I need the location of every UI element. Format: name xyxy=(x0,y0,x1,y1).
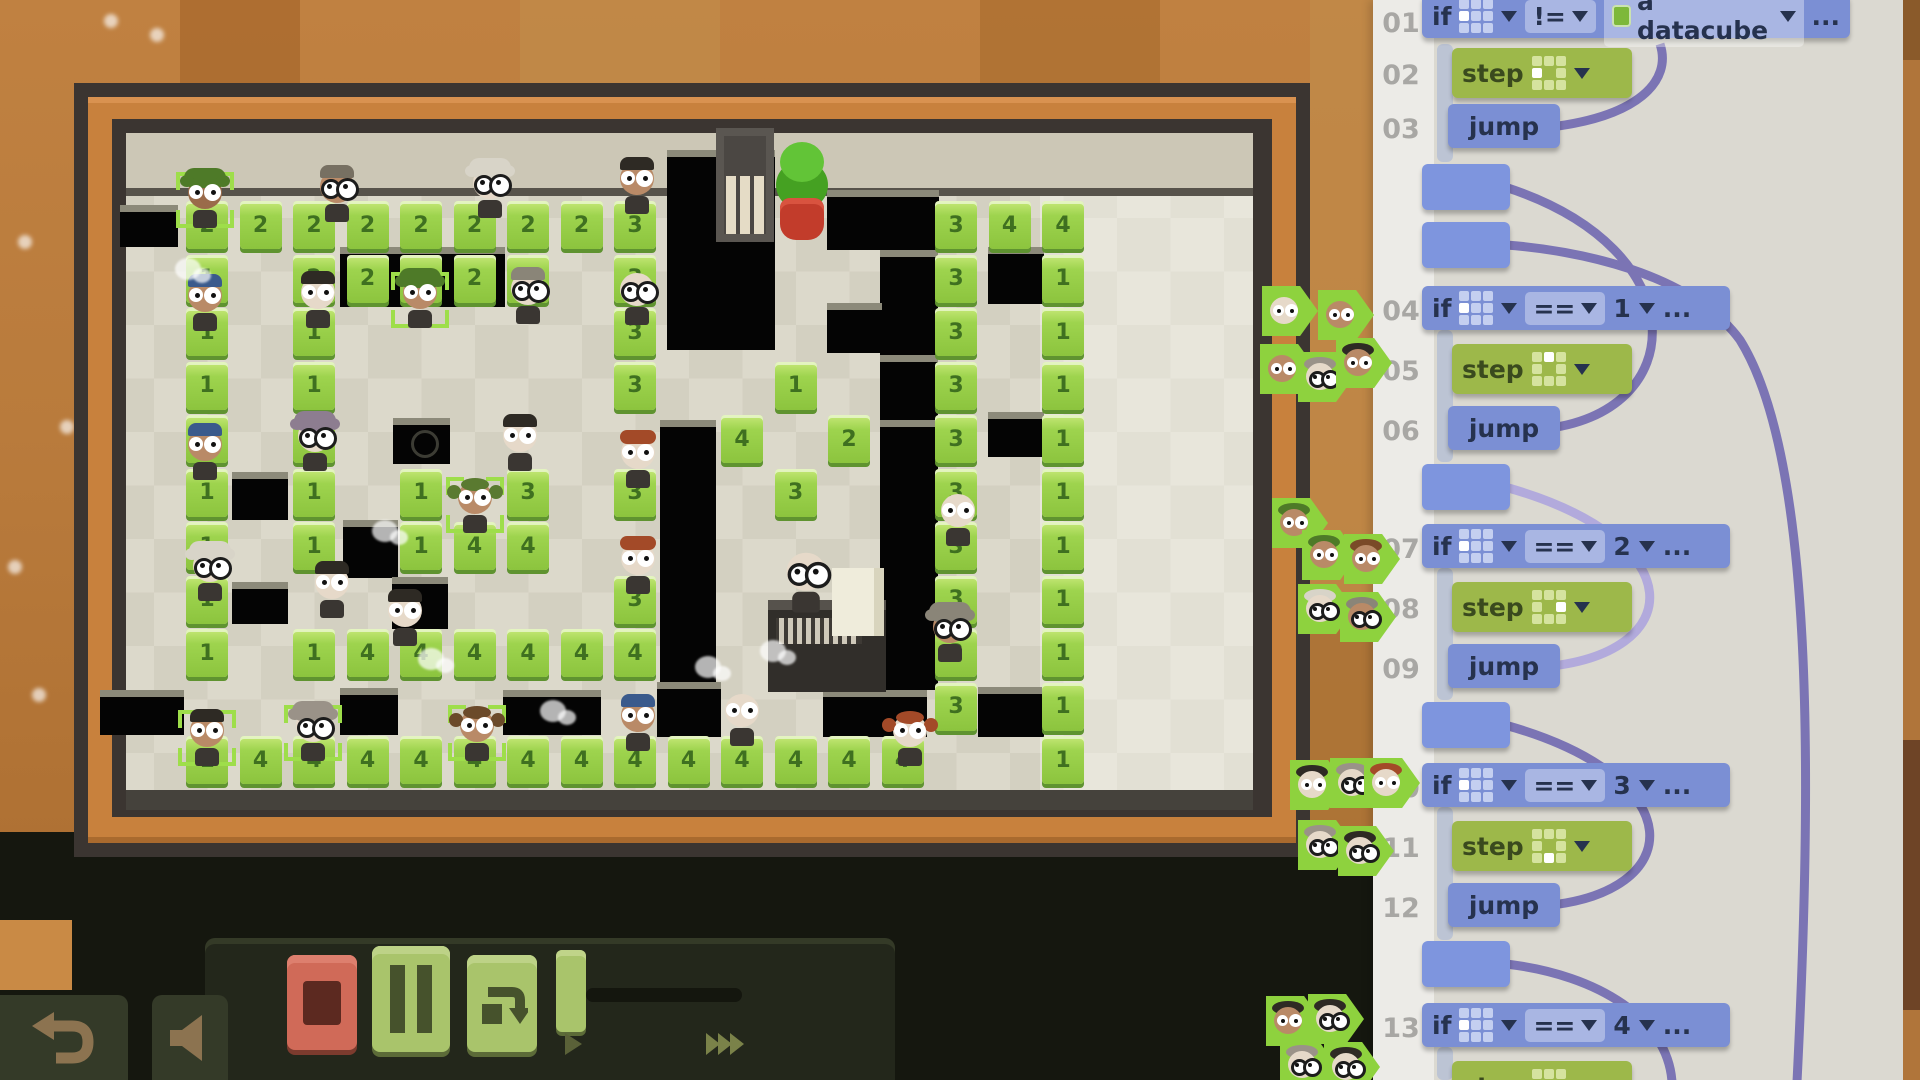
chevron-down-icon[interactable] xyxy=(1639,1020,1655,1031)
compare-value: 1 xyxy=(1613,294,1630,323)
worker[interactable] xyxy=(177,704,237,768)
jump-keyword: jump xyxy=(1469,414,1539,443)
jump-target-tab[interactable] xyxy=(1422,164,1510,210)
floor-pit xyxy=(660,420,716,690)
worker[interactable] xyxy=(607,263,667,327)
operator-value: == xyxy=(1533,532,1575,561)
operator-dropdown[interactable]: == xyxy=(1525,1009,1605,1042)
worker-pupil xyxy=(211,190,216,195)
chevron-down-icon[interactable] xyxy=(1639,303,1655,314)
worker-pupil xyxy=(518,286,523,291)
worker-body xyxy=(303,453,327,471)
if-direction-grid[interactable] xyxy=(1459,0,1493,33)
if-body-indent xyxy=(1437,1047,1453,1080)
operator-value: == xyxy=(1533,1011,1575,1040)
step-block[interactable]: step xyxy=(1452,48,1632,98)
worker-pupil xyxy=(195,293,200,298)
if-direction-grid[interactable] xyxy=(1459,1008,1493,1042)
worker-pupil xyxy=(510,433,515,438)
worker[interactable] xyxy=(460,156,520,220)
datacube[interactable]: 1 xyxy=(186,629,228,677)
worker[interactable] xyxy=(712,684,772,748)
worker-body xyxy=(198,583,222,601)
operator-value: == xyxy=(1533,771,1575,800)
worker-pupil xyxy=(643,176,648,181)
datacube[interactable]: 4 xyxy=(507,629,549,677)
datacube[interactable]: 4 xyxy=(454,629,496,677)
datacube[interactable]: 4 xyxy=(775,736,817,784)
worker-pupil xyxy=(211,293,216,298)
background-building xyxy=(0,920,72,990)
datacube[interactable]: 3 xyxy=(775,469,817,517)
worker-pupil xyxy=(627,287,632,292)
if-block[interactable]: if==2... xyxy=(1422,524,1730,568)
worker[interactable] xyxy=(920,600,980,664)
datacube[interactable]: 4 xyxy=(400,736,442,784)
avatar-pupil xyxy=(1318,783,1322,787)
worker-hair xyxy=(620,430,656,444)
avatar-eye xyxy=(1303,1058,1322,1077)
avatar-pupil xyxy=(1326,375,1330,379)
avatar-pupil xyxy=(1277,309,1281,313)
floor-pit xyxy=(100,690,184,735)
line-number: 01 xyxy=(1373,8,1429,39)
speed-slider[interactable] xyxy=(556,950,586,1032)
worker-hair xyxy=(315,561,349,574)
operator-dropdown[interactable]: == xyxy=(1525,530,1605,563)
datacube[interactable]: 1 xyxy=(1042,308,1084,356)
datacube[interactable]: 1 xyxy=(1042,469,1084,517)
worker-body xyxy=(938,644,962,662)
datacube[interactable]: 4 xyxy=(561,629,603,677)
datacube[interactable]: 4 xyxy=(507,736,549,784)
jump-keyword: jump xyxy=(1469,112,1539,141)
floor-pit xyxy=(880,250,938,355)
datacube[interactable]: 2 xyxy=(347,255,389,303)
datacube[interactable]: 1 xyxy=(1042,683,1084,731)
datacube[interactable]: 1 xyxy=(775,362,817,410)
step-over-button[interactable] xyxy=(467,955,537,1052)
chevron-down-icon[interactable] xyxy=(1501,1020,1517,1031)
avatar-eye xyxy=(1363,610,1382,629)
step-direction-grid[interactable] xyxy=(1532,590,1566,624)
jump-block[interactable]: jump xyxy=(1448,406,1560,450)
floor-pit xyxy=(827,303,882,353)
worker-body xyxy=(301,743,325,761)
line-number: 13 xyxy=(1373,1013,1429,1044)
worker-pupil xyxy=(410,290,415,295)
worker-pupil xyxy=(467,723,472,728)
if-block[interactable]: if==4... xyxy=(1422,1003,1730,1047)
datacube[interactable]: 1 xyxy=(293,362,335,410)
chevron-down-icon[interactable] xyxy=(1574,602,1590,613)
jump-block[interactable]: jump xyxy=(1448,104,1560,148)
step-keyword: step xyxy=(1462,593,1524,622)
worker-body xyxy=(792,592,820,613)
jump-target-tab[interactable] xyxy=(1422,464,1510,510)
if-keyword: if xyxy=(1432,2,1451,31)
undo-icon xyxy=(28,1008,100,1068)
chevron-down-icon[interactable] xyxy=(1572,11,1588,22)
datacube[interactable]: 1 xyxy=(1042,576,1084,624)
line-number: 09 xyxy=(1373,654,1429,685)
if-block[interactable]: if!=a datacube... xyxy=(1422,0,1850,38)
worker-pupil xyxy=(643,287,648,292)
operator-dropdown[interactable]: == xyxy=(1525,769,1605,802)
worker-pupil xyxy=(644,713,649,718)
compare-value: 2 xyxy=(1613,532,1630,561)
step-block[interactable]: step xyxy=(1452,821,1632,871)
worker-eye xyxy=(314,427,337,450)
datacube[interactable]: 2 xyxy=(454,255,496,303)
play-icon xyxy=(565,1033,582,1055)
bug-icon xyxy=(411,430,439,458)
avatar-pupil xyxy=(1308,1063,1312,1067)
avatar-pupil xyxy=(1372,557,1376,561)
chevron-down-icon[interactable] xyxy=(1501,780,1517,791)
jump-keyword: jump xyxy=(1469,891,1539,920)
worker-pupil xyxy=(526,433,531,438)
avatar-pupil xyxy=(1355,615,1359,619)
chevron-down-icon[interactable] xyxy=(1581,780,1597,791)
background-right-edge xyxy=(1903,0,1920,1080)
compare-value: 4 xyxy=(1613,1011,1630,1040)
worker-pupil xyxy=(534,286,539,291)
worker[interactable] xyxy=(608,426,668,490)
datacube[interactable]: 4 xyxy=(240,736,282,784)
datacube[interactable]: 1 xyxy=(186,362,228,410)
worker-pupil xyxy=(916,728,921,733)
datacube[interactable]: 3 xyxy=(507,469,549,517)
worker-pupil xyxy=(395,608,400,613)
line-number: 04 xyxy=(1373,296,1429,327)
datacube-dropdown[interactable]: a datacube xyxy=(1604,0,1804,47)
worker-pupil xyxy=(216,563,221,568)
worker-pupil xyxy=(343,184,348,189)
worker-hair xyxy=(621,694,655,707)
more-options: ... xyxy=(1663,294,1692,323)
worker-pupil xyxy=(338,580,343,585)
step-keyword: step xyxy=(1462,832,1524,861)
jump-target-tab[interactable] xyxy=(1422,222,1510,268)
worker-body xyxy=(626,733,650,751)
worker-pupil xyxy=(303,723,308,728)
avatar-pupil xyxy=(1345,781,1349,785)
worker[interactable] xyxy=(307,160,367,224)
smoke-puff xyxy=(778,650,796,665)
if-keyword: if xyxy=(1432,1011,1451,1040)
step-over-icon xyxy=(476,978,528,1030)
datacube[interactable]: 3 xyxy=(935,415,977,463)
avatar-pupil xyxy=(1287,521,1291,525)
gate-icon xyxy=(716,128,774,242)
line-number: 12 xyxy=(1373,893,1429,924)
step-direction-grid[interactable] xyxy=(1532,56,1566,90)
worker-pupil xyxy=(964,508,969,513)
datacube[interactable]: 2 xyxy=(240,201,282,249)
worker-hair xyxy=(290,418,304,430)
more-options: ... xyxy=(1663,771,1692,800)
avatar-pupil xyxy=(1326,607,1330,611)
stop-button[interactable] xyxy=(287,955,357,1050)
worker-pupil xyxy=(319,723,324,728)
avatar-pupil xyxy=(1275,367,1279,371)
step-block[interactable]: step xyxy=(1452,344,1632,394)
worker[interactable] xyxy=(283,699,343,763)
step-block[interactable]: step xyxy=(1452,1061,1632,1080)
worker[interactable] xyxy=(447,699,507,763)
avatar-pupil xyxy=(1339,1065,1343,1069)
worker-pupil xyxy=(480,180,485,185)
avatar-pupil xyxy=(1336,1017,1340,1021)
avatar-pupil xyxy=(1326,843,1330,847)
datacube[interactable]: 1 xyxy=(1042,522,1084,570)
chevron-down-icon[interactable] xyxy=(1581,541,1597,552)
datacube[interactable]: 4 xyxy=(561,736,603,784)
line-number: 02 xyxy=(1373,60,1429,91)
datacube[interactable]: 3 xyxy=(614,362,656,410)
datacube[interactable]: 3 xyxy=(935,201,977,249)
operator-value: == xyxy=(1533,294,1575,323)
datacube[interactable]: 4 xyxy=(347,736,389,784)
worker-hair xyxy=(620,157,654,170)
floor-pit xyxy=(120,205,178,247)
worker-pupil xyxy=(305,433,310,438)
worker[interactable] xyxy=(302,556,362,620)
worker[interactable] xyxy=(175,418,235,482)
datacube[interactable]: 4 xyxy=(989,201,1031,249)
datacube[interactable]: 2 xyxy=(561,201,603,249)
if-keyword: if xyxy=(1432,294,1451,323)
worker-hair xyxy=(620,536,656,550)
chevron-down-icon[interactable] xyxy=(1501,303,1517,314)
worker-pupil xyxy=(795,569,801,575)
chevron-down-icon[interactable] xyxy=(1574,68,1590,79)
datacube[interactable]: 3 xyxy=(935,255,977,303)
worker[interactable] xyxy=(490,409,550,473)
avatar-pupil xyxy=(1368,615,1372,619)
step-direction-grid[interactable] xyxy=(1532,829,1566,863)
stop-icon xyxy=(303,981,341,1025)
worker[interactable] xyxy=(288,266,348,330)
avatar-pupil xyxy=(1281,1019,1285,1023)
avatar-pupil xyxy=(1364,361,1368,365)
smoke-puff xyxy=(390,530,408,545)
dust-speck xyxy=(32,688,46,702)
worker-pupil xyxy=(213,728,218,733)
floor-pit xyxy=(988,412,1044,457)
worker[interactable] xyxy=(928,484,988,548)
worker-eye xyxy=(949,618,972,641)
avatar-eye xyxy=(1321,602,1340,621)
step-direction-grid[interactable] xyxy=(1532,1069,1566,1080)
datacube[interactable]: 1 xyxy=(1042,415,1084,463)
avatar-eye xyxy=(1321,838,1340,857)
worker-pupil xyxy=(211,442,216,447)
worker-hair xyxy=(185,548,199,560)
worker-body xyxy=(625,307,649,325)
if-keyword: if xyxy=(1432,771,1451,800)
avatar-pupil xyxy=(1313,607,1317,611)
avatar-pupil xyxy=(1295,1063,1299,1067)
step-block[interactable]: step xyxy=(1452,582,1632,632)
dust-speck xyxy=(8,560,22,574)
floor-pit xyxy=(827,190,939,250)
chevron-down-icon[interactable] xyxy=(1639,780,1655,791)
datacube[interactable]: 4 xyxy=(828,736,870,784)
plant-pot xyxy=(780,198,824,240)
worker-body xyxy=(730,728,754,746)
worker-hair xyxy=(320,165,354,178)
avatar-pupil xyxy=(1366,849,1370,853)
worker[interactable] xyxy=(772,541,841,615)
operator-dropdown[interactable]: != xyxy=(1525,0,1595,33)
avatar-eye xyxy=(1331,1012,1350,1031)
worker-pupil xyxy=(644,450,649,455)
datacube[interactable]: 4 xyxy=(1042,201,1084,249)
worker[interactable] xyxy=(607,152,667,216)
worker-eye xyxy=(336,178,359,201)
chevron-down-icon[interactable] xyxy=(1780,11,1796,22)
avatar-pupil xyxy=(1352,1065,1356,1069)
worker-pupil xyxy=(628,713,633,718)
jump-block[interactable]: jump xyxy=(1448,883,1560,927)
datacube-label: a datacube xyxy=(1637,0,1774,45)
datacube[interactable]: 1 xyxy=(293,629,335,677)
datacube[interactable]: 4 xyxy=(507,522,549,570)
if-direction-grid[interactable] xyxy=(1459,768,1493,802)
datacube[interactable]: 4 xyxy=(614,629,656,677)
worker-body xyxy=(626,470,650,488)
worker-eye xyxy=(209,557,232,580)
worker-hair xyxy=(288,708,302,720)
if-keyword: if xyxy=(1432,532,1451,561)
avatar-pupil xyxy=(1359,557,1363,561)
datacube[interactable]: 1 xyxy=(1042,736,1084,784)
datacube[interactable]: 1 xyxy=(400,522,442,570)
jump-block[interactable]: jump xyxy=(1448,644,1560,688)
worker[interactable] xyxy=(880,704,940,768)
worker-pupil xyxy=(483,723,488,728)
worker-body xyxy=(193,313,217,331)
worker-body xyxy=(195,748,219,766)
if-direction-grid[interactable] xyxy=(1459,291,1493,325)
avatar-pupil xyxy=(1330,553,1334,557)
worker[interactable] xyxy=(375,584,435,648)
worker-body xyxy=(325,204,349,222)
chevron-down-icon[interactable] xyxy=(1501,11,1517,22)
avatar-pupil xyxy=(1290,309,1294,313)
avatar-pupil xyxy=(1305,783,1309,787)
chevron-down-icon[interactable] xyxy=(1574,364,1590,375)
datacube[interactable]: 4 xyxy=(721,415,763,463)
datacube[interactable]: 1 xyxy=(1042,629,1084,677)
chevron-down-icon[interactable] xyxy=(1581,1020,1597,1031)
datacube[interactable]: 1 xyxy=(1042,255,1084,303)
worker-pupil xyxy=(956,624,961,629)
worker-pupil xyxy=(426,290,431,295)
more-options: ... xyxy=(1663,1011,1692,1040)
worker[interactable] xyxy=(175,166,235,230)
operator-dropdown[interactable]: == xyxy=(1525,292,1605,325)
dust-speck xyxy=(18,235,32,249)
avatar-pupil xyxy=(1288,367,1292,371)
worker[interactable] xyxy=(390,266,450,330)
speed-slider-track[interactable] xyxy=(586,988,742,1002)
worker[interactable] xyxy=(608,689,668,753)
worker-pupil xyxy=(411,608,416,613)
compare-value: 3 xyxy=(1613,771,1630,800)
chevron-down-icon[interactable] xyxy=(1581,303,1597,314)
worker[interactable] xyxy=(608,532,668,596)
pause-icon xyxy=(390,965,405,1033)
avatar-pupil xyxy=(1294,1019,1298,1023)
floor-pit xyxy=(988,247,1044,304)
datacube[interactable]: 2 xyxy=(828,415,870,463)
floor-pit xyxy=(340,688,398,735)
worker-pupil xyxy=(327,184,332,189)
avatar-pupil xyxy=(1333,313,1337,317)
if-block[interactable]: if==3... xyxy=(1422,763,1730,807)
worker[interactable] xyxy=(498,262,558,326)
worker-pupil xyxy=(627,176,632,181)
worker-pupil xyxy=(748,708,753,713)
more-options: ... xyxy=(1663,532,1692,561)
dust-speck xyxy=(104,14,118,28)
floor-pit xyxy=(232,472,288,520)
worker[interactable] xyxy=(445,471,505,535)
chevron-down-icon[interactable] xyxy=(1501,541,1517,552)
jump-target-tab[interactable] xyxy=(1422,702,1510,748)
worker-pupil xyxy=(197,728,202,733)
datacube[interactable]: 1 xyxy=(400,469,442,517)
datacube[interactable]: 1 xyxy=(1042,362,1084,410)
datacube-icon xyxy=(1612,5,1631,27)
worker-pupil xyxy=(628,556,633,561)
datacube[interactable]: 3 xyxy=(935,683,977,731)
worker-hair xyxy=(301,271,335,284)
undo-button[interactable] xyxy=(0,995,128,1080)
worker-body xyxy=(508,453,532,471)
pause-button[interactable] xyxy=(372,946,450,1052)
if-direction-grid[interactable] xyxy=(1459,529,1493,563)
smoke-puff xyxy=(193,268,211,283)
worker-hair xyxy=(925,609,939,621)
dust-speck xyxy=(150,28,164,42)
jump-target-tab[interactable] xyxy=(1422,941,1510,987)
datacube[interactable]: 4 xyxy=(668,736,710,784)
step-direction-grid[interactable] xyxy=(1532,352,1566,386)
worker[interactable] xyxy=(285,409,345,473)
chevron-down-icon[interactable] xyxy=(1574,841,1590,852)
smoke-puff xyxy=(436,658,454,673)
line-number: 06 xyxy=(1373,416,1429,447)
if-block[interactable]: if==1... xyxy=(1422,286,1730,330)
worker-eye xyxy=(489,174,512,197)
mute-button[interactable] xyxy=(152,995,228,1080)
worker-hair xyxy=(491,713,505,727)
datacube[interactable]: 1 xyxy=(293,469,335,517)
datacube[interactable]: 3 xyxy=(935,308,977,356)
avatar-pupil xyxy=(1317,553,1321,557)
worker-hair xyxy=(465,165,479,177)
chevron-down-icon[interactable] xyxy=(1639,541,1655,552)
worker[interactable] xyxy=(180,539,240,603)
datacube[interactable]: 2 xyxy=(400,201,442,249)
worker-pupil xyxy=(940,624,945,629)
avatar-pupil xyxy=(1300,521,1304,525)
datacube[interactable]: 3 xyxy=(935,362,977,410)
